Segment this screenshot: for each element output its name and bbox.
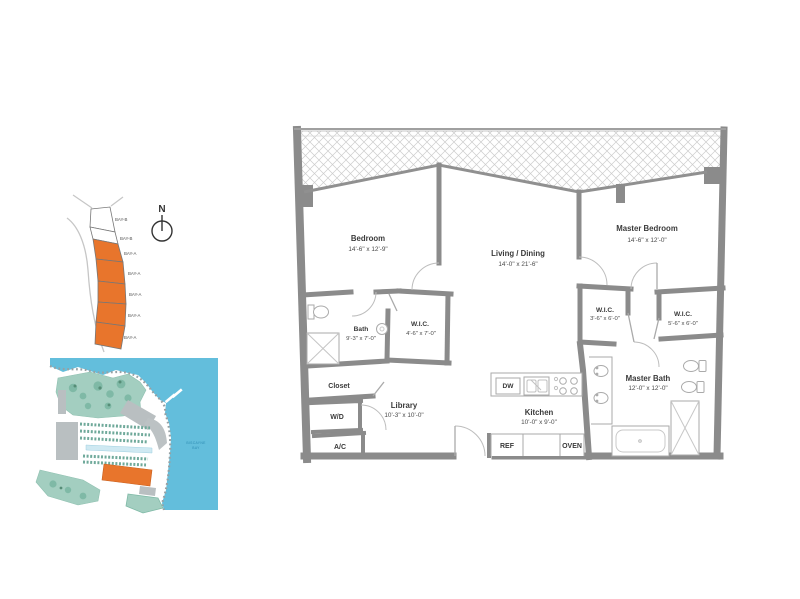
- range-knob: [554, 386, 557, 389]
- bay-cell-a5: [95, 322, 125, 349]
- bay-label: BAY-A: [124, 335, 137, 340]
- room-dims-wic1: 4'-6" x 7'-0": [406, 331, 436, 337]
- room-dims-master-bedroom: 14'-6" x 12'-0": [627, 237, 666, 244]
- tub-drain: [639, 440, 642, 443]
- key-plan-road-line-3: [111, 197, 123, 206]
- room-label-master-bedroom: Master Bedroom: [616, 224, 678, 233]
- wd-door-arc: [361, 405, 386, 430]
- bay-label: BAY-A: [124, 251, 137, 256]
- wic2-door-leaf: [628, 313, 634, 342]
- compass-north-label: N: [158, 204, 165, 215]
- room-dims-kitchen: 10'-0" x 9'-0": [521, 419, 557, 426]
- wall-wic2-top: [579, 286, 631, 289]
- master-bath-door-arc: [634, 342, 659, 367]
- room-label-ac: A/C: [334, 444, 346, 451]
- room-dims-master-bath: 12'-0" x 12'-0": [628, 385, 667, 392]
- room-label-master-bath: Master Bath: [626, 374, 671, 383]
- room-label-kitchen: Kitchen: [525, 408, 554, 417]
- wall-wic1-top: [399, 291, 451, 294]
- room-dims-wic2: 3'-6" x 6'-0": [590, 316, 620, 322]
- window-column: [616, 184, 625, 203]
- site-map-building: [56, 422, 78, 460]
- closet-door-leaf: [373, 382, 384, 396]
- faucet-dot: [596, 400, 598, 402]
- bay-label: BAY-A: [128, 271, 141, 276]
- wall-wic2-bottom: [580, 342, 614, 344]
- wall-wic3-bottom: [661, 335, 721, 339]
- bedroom-door-arc: [412, 263, 439, 290]
- wall-wic1-left: [387, 311, 388, 360]
- corner-column-right: [704, 167, 725, 184]
- water-label-line2: BAY: [192, 446, 200, 450]
- room-dims-library: 10'-3" x 10'-0": [384, 412, 423, 419]
- sink-basin-left: [527, 380, 536, 392]
- appliance-label-oven: OVEN: [562, 443, 582, 450]
- bay-cell-a2: [96, 259, 125, 284]
- bay-label: BAY-B: [115, 217, 128, 222]
- water-label-line1: BISCAYNE: [186, 441, 206, 445]
- bay-label: BAY-A: [128, 313, 141, 318]
- toilet-fixture: [684, 361, 699, 372]
- entry-door-arc: [455, 426, 485, 456]
- room-dims-bath: 9'-3" x 7'-0": [346, 336, 376, 342]
- range-burner: [571, 378, 578, 385]
- room-labels: Bedroom 14'-6" x 12'-9" Living / Dining …: [328, 224, 698, 451]
- faucet-dot: [596, 394, 598, 396]
- bidet-tank: [697, 382, 704, 393]
- room-label-wic1: W.I.C.: [411, 321, 429, 328]
- site-map-building: [58, 390, 66, 414]
- balcony-hatch: [295, 131, 724, 192]
- room-label-library: Library: [391, 401, 418, 410]
- vestibule-door-arc: [631, 263, 657, 289]
- sink-drain: [380, 327, 384, 331]
- range-knob: [554, 377, 557, 380]
- room-label-wd: W/D: [330, 414, 344, 421]
- bay-cell-a3: [98, 281, 126, 304]
- floorplan-sheet: BAY-B BAY-B BAY-A BAY-A BAY-A BAY-A BAY-…: [0, 0, 800, 599]
- master-bedroom-door-arc: [579, 257, 607, 285]
- faucet-dot: [596, 367, 598, 369]
- bath-fixtures: [307, 305, 388, 364]
- appliance-label-dw: DW: [503, 383, 515, 390]
- wall-bath-top: [303, 291, 399, 295]
- wall-wic3-top: [657, 288, 723, 292]
- room-label-bedroom: Bedroom: [351, 234, 385, 243]
- key-plan-road-line-2: [73, 195, 92, 208]
- wic1-door-leaf: [389, 294, 397, 311]
- wall-wic1-bottom: [387, 360, 449, 363]
- bidet-fixture: [682, 382, 697, 393]
- compass-icon: N: [152, 204, 172, 241]
- faucet-dot: [596, 373, 598, 375]
- site-map: BISCAYNE BAY: [28, 358, 218, 516]
- wic3-door-leaf: [654, 318, 659, 339]
- wall-closet-bottom: [311, 396, 373, 400]
- toilet-tank: [699, 361, 706, 372]
- room-label-wic2: W.I.C.: [596, 307, 614, 314]
- room-dims-bedroom: 14'-6" x 12'-9": [348, 246, 387, 253]
- bay-label: BAY-A: [129, 292, 142, 297]
- toilet-fixture: [314, 306, 329, 318]
- room-dims-living-dining: 14'-0" x 21'-6": [498, 261, 537, 268]
- bay-strip: [90, 207, 126, 349]
- room-label-bath: Bath: [354, 326, 369, 333]
- room-label-closet: Closet: [328, 383, 350, 390]
- bay-cell-a1: [93, 239, 123, 262]
- appliance-label-ref: REF: [500, 443, 515, 450]
- bay-label: BAY-B: [120, 236, 133, 241]
- corner-column-left: [296, 185, 313, 207]
- room-dims-wic3: 5'-6" x 6'-0": [668, 321, 698, 327]
- sink-basin-right: [538, 380, 547, 392]
- room-label-living-dining: Living / Dining: [491, 249, 545, 258]
- master-bath-fixtures: [589, 357, 706, 456]
- range-burner: [571, 388, 578, 395]
- floor-plan: Bedroom 14'-6" x 12'-9" Living / Dining …: [283, 115, 743, 475]
- range-burner: [560, 388, 567, 395]
- key-plan: BAY-B BAY-B BAY-A BAY-A BAY-A BAY-A BAY-…: [66, 192, 190, 360]
- bath-door-arc: [352, 292, 376, 316]
- room-label-wic3: W.I.C.: [674, 311, 692, 318]
- range-burner: [560, 378, 567, 385]
- wall-wic1-right: [447, 294, 448, 363]
